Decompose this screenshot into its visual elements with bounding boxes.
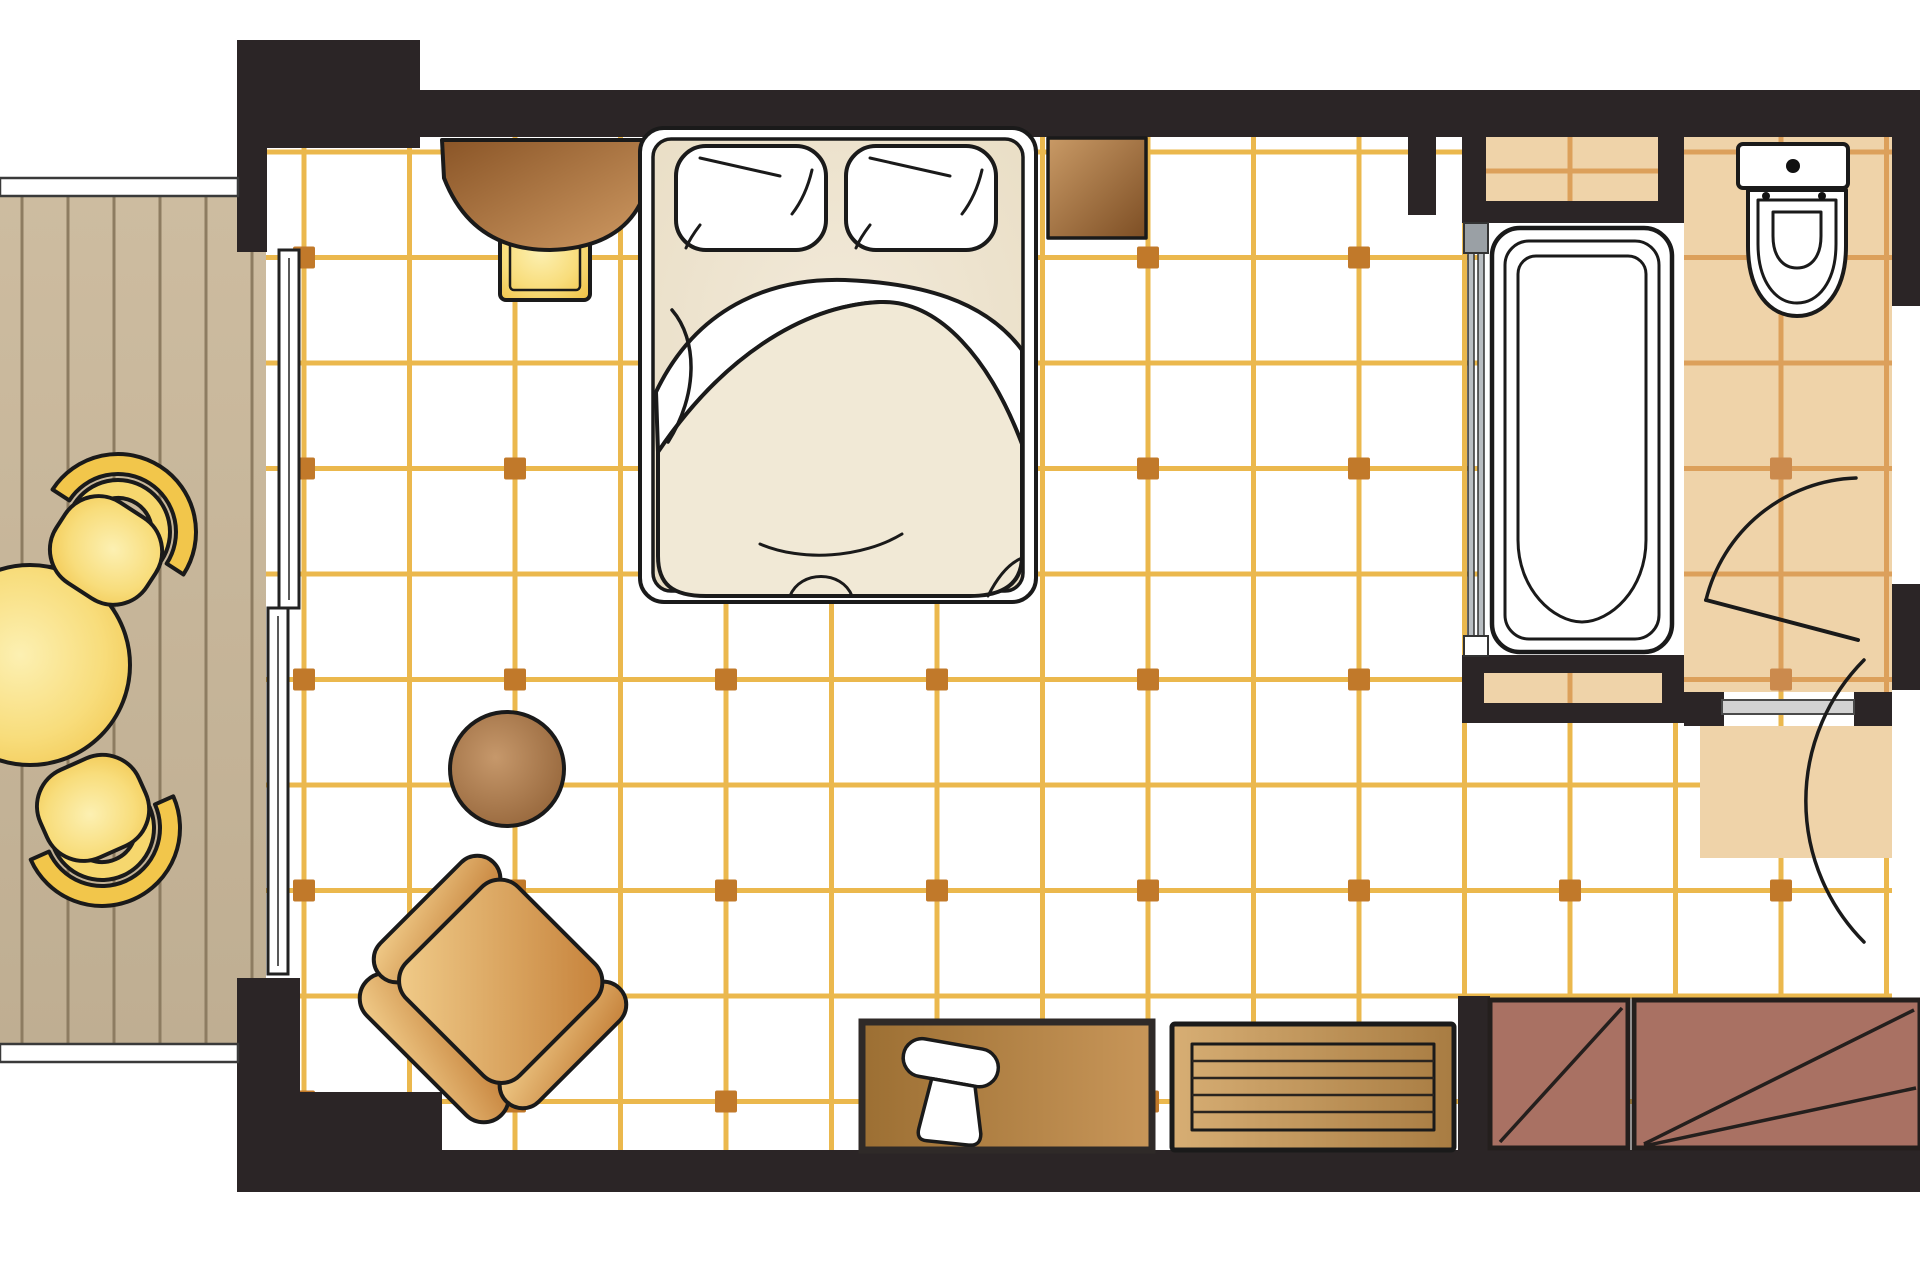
wall-bottom-left-pier — [237, 978, 300, 1192]
wall-alcove-south-band — [1462, 655, 1684, 673]
wall-left-pier — [237, 148, 267, 252]
balcony-rail-bottom — [0, 1044, 238, 1062]
wall-bath-south-jamb — [1854, 692, 1892, 726]
nightstand — [1048, 138, 1146, 238]
wall-top — [420, 90, 1920, 137]
wall-bath-south-left — [1684, 692, 1724, 726]
toilet-button — [1786, 159, 1800, 173]
wardrobe — [1490, 1000, 1920, 1148]
door-sill — [1722, 700, 1854, 714]
wall-niche-band — [1462, 201, 1684, 223]
wall-right-mid — [1892, 584, 1920, 690]
balcony-rail-top — [0, 178, 238, 196]
partition-post-bottom — [1464, 636, 1488, 656]
luggage-bench — [1172, 1024, 1454, 1150]
partition-post-top — [1464, 223, 1488, 253]
side-table — [450, 712, 564, 826]
tv-console — [862, 1022, 1152, 1150]
wall-bottom — [440, 1150, 1920, 1192]
floor-plan-page — [0, 0, 1920, 1280]
toilet-drain — [1773, 212, 1821, 268]
wall-wardrobe-pier — [1458, 996, 1490, 1152]
floor-plan — [0, 0, 1920, 1280]
bed — [640, 128, 1036, 602]
wall-alcove-south-bottom — [1462, 703, 1684, 723]
wall-right-top — [1892, 90, 1920, 306]
wall-top-left-block — [237, 40, 420, 148]
vestibule-floor — [1700, 726, 1892, 858]
pillow-left — [676, 146, 826, 250]
bathtub — [1492, 228, 1672, 652]
pillow-right — [846, 146, 996, 250]
niche-shelf-bottom — [1484, 673, 1662, 703]
wall-corridor-pier — [1408, 137, 1436, 215]
wall-bottom-step — [300, 1092, 442, 1192]
